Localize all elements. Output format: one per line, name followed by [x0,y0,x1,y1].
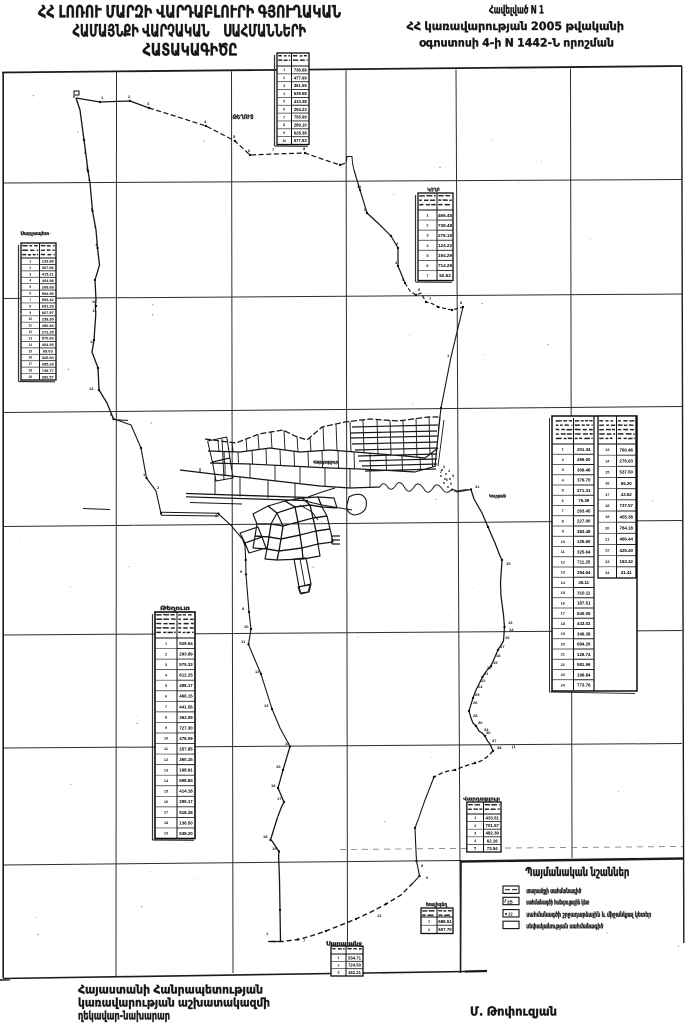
svg-text:62.16: 62.16 [487,838,499,843]
svg-text:760.46: 760.46 [620,447,634,452]
svg-text:6: 6 [446,478,448,482]
svg-text:607.70: 607.70 [438,927,452,932]
svg-text:1: 1 [283,68,285,72]
svg-text:11: 11 [241,639,246,644]
svg-text:305.24: 305.24 [42,361,55,366]
svg-text:17: 17 [561,611,565,616]
svg-text:9: 9 [450,482,452,486]
svg-text:455.38: 455.38 [620,514,634,519]
svg-text:124.22: 124.22 [438,243,452,248]
svg-text:1: 1 [474,816,476,820]
svg-text:37: 37 [492,738,497,743]
svg-text:25: 25 [475,692,480,697]
svg-text:18: 18 [28,369,32,373]
svg-text:749.77: 749.77 [42,368,54,373]
svg-text:755.99: 755.99 [294,115,307,120]
svg-text:13: 13 [264,703,269,708]
svg-text:466.44: 466.44 [620,537,634,542]
svg-text:376.70: 376.70 [577,478,591,483]
svg-text:11: 11 [357,184,362,189]
svg-text:12: 12 [255,669,260,674]
svg-text:19: 19 [272,846,277,851]
svg-text:5: 5 [29,285,31,289]
svg-text:19: 19 [164,832,168,836]
svg-text:2: 2 [396,241,399,246]
svg-text:136.50: 136.50 [179,820,193,825]
svg-text:289.10: 289.10 [294,122,307,127]
svg-text:5: 5 [474,847,476,851]
svg-text:268.68: 268.68 [42,284,55,289]
svg-text:350.15: 350.15 [179,757,193,762]
svg-text:537.50: 537.50 [620,470,634,475]
svg-text:187.51: 187.51 [577,601,591,606]
svg-text:257.85: 257.85 [179,746,193,751]
svg-text:20: 20 [605,525,609,530]
svg-text:126.74: 126.74 [577,652,591,657]
svg-text:73.54: 73.54 [487,846,499,851]
svg-text:518.28: 518.28 [179,810,193,815]
svg-text:69.03: 69.03 [43,349,54,354]
svg-text:538.20: 538.20 [179,831,193,836]
svg-text:1: 1 [338,956,340,960]
svg-text:7: 7 [272,147,275,152]
svg-text:441.56: 441.56 [179,704,193,709]
svg-text:5: 5 [452,474,454,478]
svg-text:18: 18 [496,653,501,658]
svg-text:11: 11 [164,747,168,751]
svg-text:239.30: 239.30 [42,316,54,321]
svg-text:10: 10 [244,624,249,629]
svg-text:43.62: 43.62 [621,492,633,497]
svg-text:8: 8 [460,300,463,305]
svg-text:5: 5 [165,684,167,688]
svg-text:17: 17 [277,796,282,801]
svg-text:20: 20 [561,641,565,646]
svg-text:18: 18 [263,834,268,839]
svg-text:581.96: 581.96 [577,662,591,667]
svg-text:410.38: 410.38 [294,99,307,104]
svg-text:612.25: 612.25 [179,673,193,678]
svg-text:577.63: 577.63 [294,138,307,143]
svg-text:414.18: 414.18 [179,789,193,794]
svg-text:724.50: 724.50 [348,963,361,968]
svg-text:41.41: 41.41 [621,570,633,575]
svg-text:575.33: 575.33 [179,662,193,667]
svg-text:4: 4 [283,92,285,96]
svg-text:12: 12 [508,912,513,917]
svg-text:9: 9 [240,569,243,574]
svg-text:310.11: 310.11 [577,590,591,595]
svg-text:10: 10 [282,139,286,143]
svg-text:7: 7 [562,508,564,513]
svg-text:727.30: 727.30 [179,725,193,730]
svg-text:534.71: 534.71 [348,955,361,960]
svg-text:307.66: 307.66 [42,265,55,270]
svg-text:41: 41 [475,484,480,489]
svg-text:11: 11 [29,324,33,328]
svg-text:13: 13 [164,768,168,772]
svg-text:701.57: 701.57 [486,823,500,828]
svg-text:1: 1 [266,931,269,936]
svg-text:6: 6 [426,875,429,880]
svg-text:8: 8 [421,863,424,868]
svg-text:309.46: 309.46 [577,467,591,472]
svg-text:325.64: 325.64 [577,549,591,554]
svg-text:7: 7 [303,938,306,943]
svg-text:628.38: 628.38 [294,130,307,135]
svg-text:19: 19 [28,375,32,379]
svg-text:201.34: 201.34 [577,447,591,452]
svg-text:737.57: 737.57 [620,503,634,508]
svg-text:640.05: 640.05 [577,611,591,616]
svg-text:691.28: 691.28 [42,304,55,309]
svg-text:739.48: 739.48 [438,223,452,228]
svg-text:7: 7 [165,705,167,709]
svg-text:404.93: 404.93 [42,342,55,347]
svg-text:8: 8 [242,606,245,611]
svg-text:45.11: 45.11 [578,580,589,585]
svg-text:75.39: 75.39 [578,498,590,503]
svg-text:2: 2 [440,470,442,474]
svg-text:17: 17 [164,811,168,815]
svg-text:9: 9 [283,131,285,135]
svg-text:12: 12 [164,758,168,762]
svg-text:6: 6 [283,107,285,111]
svg-text:570.63: 570.63 [42,336,55,341]
svg-text:361.59: 361.59 [294,83,307,88]
svg-text:198.91: 198.91 [179,768,193,773]
svg-text:554.42: 554.42 [42,297,55,302]
svg-text:425.40: 425.40 [620,548,634,553]
svg-text:6: 6 [91,206,94,211]
svg-text:443.02: 443.02 [577,621,591,626]
svg-text:3: 3 [147,101,150,106]
svg-text:9: 9 [165,726,167,730]
svg-text:594.99: 594.99 [42,291,55,296]
svg-text:294.23: 294.23 [294,107,307,112]
svg-text:263.45: 263.45 [577,508,591,513]
svg-text:478.09: 478.09 [179,736,193,741]
svg-text:30: 30 [478,720,483,725]
svg-text:714.29: 714.29 [438,263,452,268]
svg-text:21: 21 [484,671,489,676]
svg-text:125.60: 125.60 [577,539,591,544]
svg-text:15: 15 [505,635,510,640]
svg-text:2B: 2B [507,899,514,904]
svg-text:12: 12 [90,339,95,344]
svg-text:3: 3 [443,465,445,469]
svg-text:26: 26 [473,700,478,705]
svg-text:6: 6 [29,292,31,296]
svg-text:3: 3 [165,663,167,667]
svg-text:8: 8 [29,304,31,308]
svg-text:482.39: 482.39 [486,831,500,836]
svg-text:404.98: 404.98 [42,278,55,283]
svg-text:133.89: 133.89 [42,259,55,264]
svg-text:667.97: 667.97 [42,310,54,315]
svg-text:450.94: 450.94 [42,323,55,328]
svg-text:15: 15 [164,789,168,793]
svg-text:6: 6 [248,148,251,153]
svg-text:5: 5 [233,134,236,139]
svg-text:4: 4 [204,119,207,124]
svg-text:498.17: 498.17 [179,683,193,688]
svg-text:1: 1 [165,642,167,646]
svg-text:1: 1 [29,259,31,263]
svg-text:198.84: 198.84 [577,672,591,677]
svg-text:163.42: 163.42 [620,559,634,564]
svg-text:36: 36 [486,730,491,735]
svg-text:65.20: 65.20 [621,481,633,486]
svg-text:4: 4 [448,469,450,473]
svg-text:496.00: 496.00 [577,457,591,462]
svg-text:16: 16 [164,800,168,804]
svg-text:2: 2 [474,824,476,828]
svg-text:9: 9 [29,311,31,315]
svg-text:38: 38 [497,745,502,750]
svg-text:736.68: 736.68 [294,68,307,73]
svg-text:13: 13 [89,386,94,391]
svg-text:12: 12 [377,913,382,918]
svg-text:17: 17 [28,362,32,366]
svg-text:15: 15 [276,764,281,769]
svg-text:2: 2 [29,266,31,270]
svg-text:684.29: 684.29 [577,642,591,647]
svg-text:1: 1 [428,920,430,924]
svg-text:7: 7 [283,115,285,119]
svg-text:16: 16 [271,783,276,788]
svg-text:8: 8 [283,123,285,127]
svg-text:28: 28 [473,713,478,718]
svg-text:4: 4 [29,279,31,283]
svg-text:2: 2 [128,94,131,99]
svg-text:293.89: 293.89 [179,652,193,657]
svg-text:15: 15 [506,561,511,566]
svg-text:711.25: 711.25 [577,560,591,565]
svg-text:13: 13 [28,336,32,340]
svg-text:12: 12 [28,330,32,334]
svg-text:2: 2 [338,963,340,967]
svg-text:14: 14 [28,343,32,347]
svg-text:477.99: 477.99 [294,75,307,80]
svg-text:529.64: 529.64 [179,641,193,646]
svg-text:3: 3 [474,831,476,835]
svg-text:8: 8 [165,716,167,720]
svg-text:11: 11 [93,308,98,313]
svg-text:698.84: 698.84 [179,778,193,783]
svg-text:1: 1 [447,353,450,358]
svg-text:19: 19 [493,660,498,665]
svg-text:5: 5 [283,100,285,104]
svg-text:13: 13 [508,620,513,625]
svg-text:227.00: 227.00 [577,519,591,524]
svg-text:1: 1 [101,95,104,100]
svg-text:10: 10 [561,539,565,544]
svg-text:299.17: 299.17 [179,799,193,804]
svg-text:10: 10 [92,299,97,304]
svg-text:14: 14 [509,627,514,632]
svg-text:383.48: 383.48 [577,529,591,534]
svg-text:276.19: 276.19 [438,233,452,238]
svg-text:465.45: 465.45 [438,213,452,218]
svg-text:3: 3 [338,971,340,975]
svg-text:2: 2 [157,485,160,490]
svg-text:371.31: 371.31 [577,488,591,493]
svg-text:276.63: 276.63 [620,458,634,463]
svg-text:433.51: 433.51 [486,815,500,820]
svg-text:10: 10 [164,737,168,741]
svg-text:784.18: 784.18 [620,525,634,530]
svg-text:326.60: 326.60 [42,355,54,360]
svg-text:466.15: 466.15 [179,694,193,699]
svg-text:3: 3 [29,272,31,276]
svg-text:20: 20 [487,665,492,670]
svg-text:272.25: 272.25 [42,329,55,334]
svg-text:14: 14 [285,741,290,746]
svg-text:24: 24 [478,684,483,689]
svg-text:8: 8 [96,242,99,247]
svg-text:3: 3 [283,84,285,88]
svg-text:6: 6 [418,287,421,292]
svg-text:392.57: 392.57 [42,374,54,379]
svg-text:7: 7 [94,224,97,229]
svg-text:2: 2 [165,652,167,656]
svg-text:17: 17 [605,492,609,497]
svg-text:686.51: 686.51 [438,919,452,924]
svg-text:639.58: 639.58 [294,91,307,96]
svg-text:415.21: 415.21 [42,272,55,277]
svg-text:294.64: 294.64 [577,570,591,575]
svg-text:16: 16 [28,356,32,360]
svg-text:2: 2 [283,76,285,80]
svg-text:346.38: 346.38 [577,631,591,636]
svg-text:7: 7 [429,296,432,301]
svg-text:162.21: 162.21 [348,970,361,975]
svg-text:15: 15 [28,349,32,353]
svg-text:2: 2 [428,928,430,932]
svg-text:7: 7 [29,298,31,302]
svg-text:363.09: 363.09 [179,715,193,720]
svg-text:194.29: 194.29 [438,253,452,258]
svg-text:22: 22 [481,678,486,683]
svg-text:17: 17 [500,644,505,649]
svg-text:6: 6 [165,694,167,698]
svg-text:18: 18 [164,821,168,825]
svg-text:52.62: 52.62 [439,273,451,278]
svg-text:10: 10 [28,317,32,321]
svg-text:773.76: 773.76 [577,683,591,688]
svg-text:4: 4 [88,177,91,182]
